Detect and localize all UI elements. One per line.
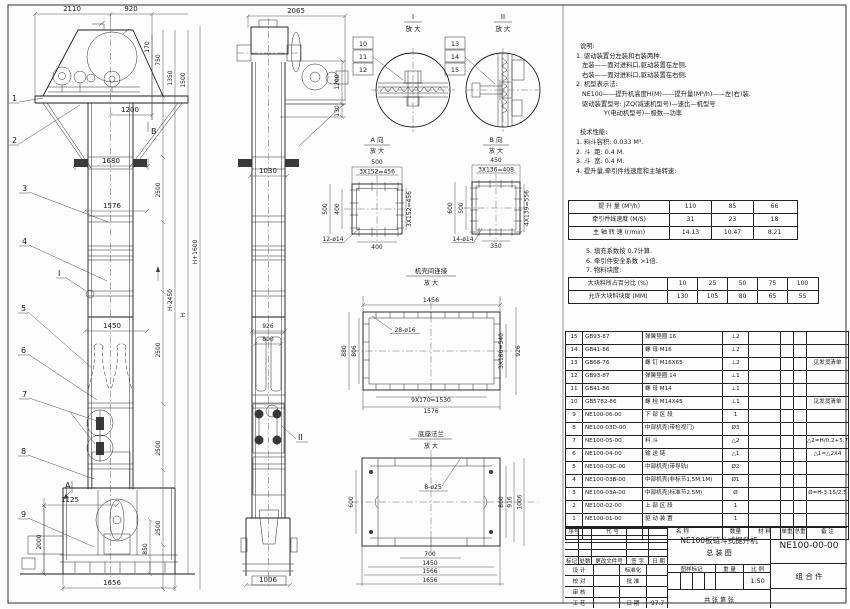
bom-cell-remark: [806, 384, 848, 396]
engineering-drawing-sheet: { "drawing": { "product_title": "NE100板链…: [0, 0, 850, 609]
bom-cell-material: [748, 462, 780, 474]
revision-row: [565, 535, 668, 542]
revision-cell: [626, 549, 648, 556]
roles-grid: 设 计 标准化 校 对 批 准 审 核 工 艺 日 期 97.7: [565, 564, 668, 608]
weight-value: [715, 572, 743, 589]
bom-cell-code: GB68-76: [582, 358, 642, 370]
stamp-box-4: [704, 572, 715, 589]
bom-cell-remark: [806, 462, 848, 474]
revision-row: [565, 528, 668, 535]
bom-row: 15GB93-87弹簧垫圈 16⊥2: [566, 332, 848, 344]
dim-1500: 1500: [180, 72, 187, 87]
lump-row-value: 10: [667, 278, 697, 290]
stamp-scale-h: 比 例: [743, 564, 771, 572]
bom-cell-remark: [806, 371, 848, 383]
dim-2110: 2110: [63, 5, 81, 13]
bom-row: 11GB41-86螺 母 M14⊥1: [566, 383, 848, 396]
dim-base-800: 800: [498, 496, 505, 508]
bom-cell-unit_w: [780, 449, 793, 461]
detail-b-sub: 放 大: [489, 147, 503, 155]
bom-cell-remark: 见发货清单: [806, 358, 848, 370]
bom-cell-no: 15: [566, 332, 582, 344]
bom-cell-material: [748, 371, 780, 383]
revision-cell: [648, 528, 668, 535]
perf-row-value: 18: [753, 214, 795, 226]
role-check: 校 对: [565, 575, 593, 586]
dim-h: H: [180, 313, 187, 318]
revision-cell: [626, 542, 648, 549]
bom-cell-qty: Ø3: [722, 423, 748, 435]
stamp-values: 1:50: [668, 572, 771, 589]
bom-cell-code: GB93-87: [582, 371, 642, 383]
detail-b-view: B 向 放 大 450 3X136=408 600 500 4X139=556 …: [447, 135, 531, 250]
lump-row-value: 80: [727, 291, 757, 303]
perf-row-value: 31: [669, 214, 711, 226]
mid-approve-sign: [646, 575, 668, 586]
drawing-title: 总 装 图: [706, 548, 731, 558]
bom-cell-name: 中部机壳(标准节2.5M): [642, 488, 722, 500]
revision-header: 标记 处数 更改文件号 签 字 日 期: [565, 556, 668, 564]
bom-cell-no: 7: [566, 436, 582, 448]
section-ii-mark: II: [298, 433, 303, 442]
bom-cell-qty: 1: [722, 410, 748, 422]
bom-cell-no: 6: [566, 449, 582, 461]
bom-cell-name: 螺 钉 M16X65: [642, 358, 722, 370]
detail-base-flange: 底座法兰 放 大 8-ø25 600 800 916 1006 700 1450…: [348, 429, 540, 586]
bom-cell-qty: ⊥2: [722, 345, 748, 357]
bom-cell-name: 螺 母 M14: [642, 384, 722, 396]
lump-row-value: 55: [787, 291, 817, 303]
dim-a-456r: 3X152=456: [406, 191, 413, 227]
balloon-2: 2: [12, 136, 17, 145]
bom-cell-no: 9: [566, 410, 582, 422]
assembly-label: 组 合 件: [771, 564, 847, 589]
bom-cell-total_w: [793, 514, 806, 526]
sheet-count: 共 张 第 张: [668, 589, 771, 608]
bom-cell-name: 驱 动 装 置: [642, 514, 722, 526]
bom-table: 15GB93-87弹簧垫圈 16⊥214GB41-86螺 母 M16⊥213GB…: [565, 331, 849, 540]
bom-cell-unit_w: [780, 423, 793, 435]
view-a-mark: A: [65, 481, 71, 490]
rev-h-doc: 更改文件号: [591, 556, 626, 564]
note-line: 3. 斗 宽: 0.4 M.: [576, 157, 844, 167]
revision-cell: [591, 542, 626, 549]
dim-b-556: 4X139=556: [524, 190, 531, 226]
role-check-sign: [593, 575, 619, 586]
revision-cell: [565, 535, 578, 542]
dim-base-916: 916: [507, 496, 514, 508]
scale-value: 1:50: [743, 572, 771, 589]
bom-cell-remark: △2=H/0.2+5.75: [806, 436, 848, 448]
dim-1656: 1656: [103, 579, 121, 587]
perf-row-value: 14.13: [669, 227, 711, 239]
balloon-4: 4: [22, 237, 27, 246]
balloon-8: 8: [21, 447, 26, 456]
note-line: 1. 驱动装置分左装和右装两种.: [576, 52, 844, 62]
bom-cell-remark: [806, 475, 848, 487]
balloon-5: 5: [21, 304, 26, 313]
bom-cell-material: [748, 488, 780, 500]
bom-row: 1NE100-01-00驱 动 装 置1: [566, 513, 848, 526]
bom-cell-total_w: [793, 488, 806, 500]
lump-row: 允许大块料块度 (MM)130105806555: [569, 290, 818, 303]
dim-1006: 1006: [259, 576, 277, 584]
role-review: 审 核: [565, 586, 593, 597]
dim-base-1450: 1450: [422, 560, 437, 567]
base-title: 底座法兰: [418, 429, 445, 438]
performance-table: 提 升 量 (M³/h)1108566牵引件线速度 (M/S)312318主 轴…: [568, 200, 798, 240]
bom-cell-qty: ⊥2: [722, 332, 748, 344]
note-line: 6. 牵引件安全系数 >1倍.: [586, 257, 844, 267]
bom-cell-code: NE100-03B-00: [582, 475, 642, 487]
bom-cell-no: 1: [566, 514, 582, 526]
bom-row: 14GB41-86螺 母 M16⊥2: [566, 344, 848, 357]
dim-800: 800: [262, 336, 274, 343]
note-line: 技术性能:: [576, 128, 844, 138]
dim-926: 926: [262, 323, 274, 330]
dim-2500-1: 2500: [155, 182, 162, 197]
bom-cell-remark: [806, 423, 848, 435]
bom-row: 12GB93-87弹簧垫圈 14⊥1: [566, 370, 848, 383]
bom-cell-unit_w: [780, 462, 793, 474]
dim-2500-3: 2500: [155, 440, 162, 455]
note-line: NE100——提升机高度H(M)——提升量(M³/h)——左(右)装.: [576, 90, 844, 100]
stamp-box-1: [668, 572, 680, 589]
lump-row-label: 大块料所占百分比 (%): [569, 278, 667, 290]
perf-row-value: 110: [669, 201, 711, 213]
bom-cell-code: NE100-03C-00: [582, 462, 642, 474]
dim-b-500: 500: [458, 202, 465, 214]
bom-cell-unit_w: [780, 410, 793, 422]
role-design-sign: [593, 564, 619, 575]
dim-h-plus: H+1600: [192, 239, 199, 264]
perf-row-label: 主 轴 转 速 (r/min): [569, 227, 669, 239]
dim-2065: 2065: [287, 7, 305, 15]
bom-cell-total_w: [793, 371, 806, 383]
bom-cell-unit_w: [780, 514, 793, 526]
bom-cell-qty: △1: [722, 449, 748, 461]
detail-i-num: I: [412, 13, 414, 21]
balloon-7: 7: [22, 390, 27, 399]
bom-cell-material: [748, 501, 780, 513]
date-value: 97.7: [646, 597, 668, 608]
dim-a-400l: 400: [334, 203, 341, 215]
dim-b-holes: 14-ø14: [452, 236, 473, 243]
dim-j-880: 880: [341, 345, 348, 357]
bom-row: 13GB68-76螺 钉 M16X65⊥2见发货清单: [566, 357, 848, 370]
revision-cell: [578, 542, 591, 549]
note-line: 4. 提升量,牵引件线速度和主轴转速:: [576, 167, 844, 177]
lump-row-value: 25: [697, 278, 727, 290]
bom-cell-total_w: [793, 332, 806, 344]
note-line: 1. 料斗容积: 0.033 M³.: [576, 138, 844, 148]
bom-cell-unit_w: [780, 475, 793, 487]
bom-cell-unit_w: [780, 358, 793, 370]
bom-cell-remark: [806, 501, 848, 513]
dim-1576: 1576: [103, 202, 121, 210]
balloon-13: 13: [451, 40, 459, 48]
bom-cell-name: 上 部 区 段: [642, 501, 722, 513]
bom-cell-remark: [806, 332, 848, 344]
note-line: 说明:: [576, 42, 844, 52]
balloon-15: 15: [451, 66, 459, 74]
bom-row: 3NE100-03A-00中部机壳(标准节2.5M)ØØ=H-3.15/2.5: [566, 487, 848, 500]
bom-cell-total_w: [793, 475, 806, 487]
dim-j-1456: 1456: [423, 296, 440, 304]
bom-cell-qty: ⊥1: [722, 384, 748, 396]
bom-cell-total_w: [793, 436, 806, 448]
detail-ii-sub: 放 大: [495, 24, 511, 33]
detail-i-sub: 放 大: [405, 24, 421, 33]
bom-row: 2NE100-02-00上 部 区 段1: [566, 500, 848, 513]
bom-cell-name: 螺 母 M16: [642, 345, 722, 357]
drawing-number: NE100-00-00: [771, 528, 847, 564]
bom-cell-total_w: [793, 384, 806, 396]
bom-cell-total_w: [793, 410, 806, 422]
balloon-6: 6: [21, 346, 26, 355]
bom-cell-no: 12: [566, 371, 582, 383]
bom-cell-no: 3: [566, 488, 582, 500]
revision-row: [565, 542, 668, 549]
perf-row-value: 10.47: [711, 227, 753, 239]
bom-cell-name: 中部机壳(带检视门): [642, 423, 722, 435]
bom-cell-total_w: [793, 462, 806, 474]
bom-row: 7NE100-05-00料 斗△2△2=H/0.2+5.75: [566, 435, 848, 448]
bom-cell-material: [748, 358, 780, 370]
dim-a-holes: 12-ø14: [322, 236, 343, 243]
revision-cell: [591, 549, 626, 556]
bom-cell-remark: 见发货清单: [806, 397, 848, 409]
base-sub: 放 大: [424, 442, 438, 450]
bom-cell-qty: Ø2: [722, 462, 748, 474]
stamp-header: 图样标记 重 量 比 例: [668, 564, 771, 572]
bom-cell-unit_w: [780, 384, 793, 396]
revision-cell: [591, 528, 626, 535]
note-line: Y(电动机型号)—极数—功率: [576, 109, 844, 119]
bom-cell-unit_w: [780, 332, 793, 344]
note-line: 7. 物料块度:: [586, 266, 844, 276]
detail-a-view: A 向 放 大 500 3X152=456 500 400 3X152=456 …: [322, 135, 413, 251]
perf-row: 主 轴 转 速 (r/min)14.1310.478.21: [569, 226, 797, 239]
balloon-14: 14: [451, 53, 459, 61]
revision-cell: [578, 535, 591, 542]
dim-1680: 1680: [102, 157, 120, 165]
rev-h-mark: 标记: [565, 556, 578, 564]
bom-cell-code: NE100-03A-00: [582, 488, 642, 500]
revision-cell: [565, 549, 578, 556]
bom-cell-qty: ⊥1: [722, 371, 748, 383]
bom-cell-material: [748, 514, 780, 526]
balloon-9: 9: [21, 510, 26, 519]
bom-row: 8NE100-03D-00中部机壳(带检视门)Ø3: [566, 422, 848, 435]
dim-920: 920: [124, 5, 137, 13]
bom-cell-total_w: [793, 358, 806, 370]
mid-approve: 批 准: [619, 575, 646, 586]
bom-cell-no: 2: [566, 501, 582, 513]
perf-row-value: 85: [711, 201, 753, 213]
bom-cell-code: GB5782-86: [582, 397, 642, 409]
lump-row: 大块料所占百分比 (%)10255075100: [569, 278, 818, 290]
role-process: 工 艺: [565, 597, 593, 608]
perf-row: 牵引件线速度 (M/S)312318: [569, 213, 797, 226]
mid-standardize-sign: [646, 564, 668, 575]
dim-170: 170: [144, 41, 151, 53]
bom-cell-code: NE100-01-00: [582, 514, 642, 526]
dim-base-700: 700: [424, 551, 436, 558]
bom-cell-total_w: [793, 501, 806, 513]
bom-cell-material: [748, 410, 780, 422]
bom-cell-qty: ⊥1: [722, 397, 748, 409]
bom-cell-remark: [806, 345, 848, 357]
lump-row-label: 允许大块料块度 (MM): [569, 291, 667, 303]
mid-blank: [619, 586, 646, 597]
detail-b-title: B 向: [489, 135, 502, 144]
revision-rows: [565, 528, 668, 556]
balloon-12: 12: [359, 66, 367, 74]
dim-1200-side: 1200: [334, 74, 341, 89]
revision-cell: [565, 528, 578, 535]
role-design: 设 计: [565, 564, 593, 575]
perf-row-label: 牵引件线速度 (M/S): [569, 214, 669, 226]
rev-h-date: 日 期: [648, 556, 668, 564]
mid-blank-sign: [646, 586, 668, 597]
bom-row: 5NE100-03C-00中部机壳(带导轨)Ø2: [566, 461, 848, 474]
dim-b-408: 3X136=408: [478, 167, 514, 174]
revision-row: [565, 549, 668, 556]
bom-cell-material: [748, 345, 780, 357]
bom-cell-material: [748, 332, 780, 344]
dim-base-1566: 1566: [422, 568, 437, 575]
dim-750: 750: [155, 54, 162, 66]
bom-cell-total_w: [793, 345, 806, 357]
revision-cell: [565, 542, 578, 549]
mid-date: 日 期: [619, 597, 646, 608]
dim-1450: 1450: [103, 322, 121, 330]
rev-h-count: 处数: [578, 556, 591, 564]
stamp-mark-h: 图样标记: [668, 564, 715, 572]
dim-b-450: 450: [490, 157, 502, 164]
bom-cell-name: 料 斗: [642, 436, 722, 448]
balloon-3: 3: [22, 184, 27, 193]
notes-block: 说明:1. 驱动装置分左装和右装两种. 左装——面对进料口,驱动装置在左侧. 右…: [576, 42, 844, 176]
revision-cell: [648, 549, 668, 556]
dim-b-350: 350: [490, 243, 502, 250]
rev-h-sign: 签 字: [626, 556, 648, 564]
dim-2500-2: 2500: [155, 342, 162, 357]
lump-row-value: 100: [787, 278, 817, 290]
bom-cell-material: [748, 423, 780, 435]
lump-row-value: 105: [697, 291, 727, 303]
bom-cell-qty: ⊥2: [722, 358, 748, 370]
balloon-11: 11: [359, 53, 367, 61]
bom-cell-no: 10: [566, 397, 582, 409]
dim-a-456t: 3X152=456: [359, 169, 395, 176]
note-line: 5. 填充系数按 0.7计算.: [586, 247, 844, 257]
bom-cell-total_w: [793, 423, 806, 435]
bom-cell-no: 5: [566, 462, 582, 474]
bom-cell-material: [748, 384, 780, 396]
note-line: 2. 斗 距: 0.4 M.: [576, 148, 844, 158]
revision-cell: [626, 528, 648, 535]
bom-row: 9NE100-06-00下 部 区 段1: [566, 409, 848, 422]
title-block: 标记 处数 更改文件号 签 字 日 期 设 计 标准化 校 对 批 准 审 核 …: [565, 527, 847, 608]
dim-850: 850: [142, 543, 149, 555]
note-line: [576, 119, 844, 129]
bom-cell-code: GB41-86: [582, 345, 642, 357]
dim-a-500t: 500: [371, 159, 383, 166]
revision-cell: [626, 535, 648, 542]
lump-size-table: 大块料所占百分比 (%)10255075100允许大块料块度 (MM)13010…: [568, 277, 819, 304]
bom-cell-qty: △2: [722, 436, 748, 448]
bom-cell-unit_w: [780, 436, 793, 448]
stamp-box-2: [680, 572, 692, 589]
perf-row: 提 升 量 (M³/h)1108566: [569, 201, 797, 213]
bom-cell-no: 4: [566, 475, 582, 487]
bom-cell-qty: 1: [722, 514, 748, 526]
detail-ii-num: II: [501, 13, 505, 21]
bom-cell-code: NE100-05-00: [582, 436, 642, 448]
revision-cell: [591, 535, 626, 542]
notes-block-2: 5. 填充系数按 0.7计算.6. 牵引件安全系数 >1倍.7. 物料块度:: [586, 247, 844, 276]
view-b-mark: B: [151, 127, 157, 136]
dim-1350: 1350: [167, 70, 174, 85]
balloon-10: 10: [359, 40, 367, 48]
bom-cell-no: 14: [566, 345, 582, 357]
dim-a-500l: 500: [322, 203, 329, 215]
bom-cell-remark: [806, 410, 848, 422]
joint-title: 机壳间连接: [415, 266, 448, 275]
dim-base-holes: 8-ø25: [424, 484, 441, 491]
perf-row-label: 提 升 量 (M³/h): [569, 201, 669, 213]
note-line: 右装——面对进料口,驱动装置在右侧.: [576, 71, 844, 81]
perf-row-value: 8.21: [753, 227, 795, 239]
bom-row: 4NE100-03B-00中部机壳(非标节1.5M,1M)Ø1: [566, 474, 848, 487]
role-review-sign: [593, 586, 619, 597]
note-line: 左装——面对进料口,驱动装置在左侧.: [576, 61, 844, 71]
bom-cell-no: 11: [566, 384, 582, 396]
bom-cell-remark: [806, 514, 848, 526]
bom-cell-material: [748, 449, 780, 461]
bom-cell-qty: Ø1: [722, 475, 748, 487]
bom-cell-code: NE100-04-00: [582, 449, 642, 461]
bom-cell-remark: △1=△2X4: [806, 449, 848, 461]
bom-cell-name: 中部机壳(非标节1.5M,1M): [642, 475, 722, 487]
bom-cell-qty: 1: [722, 501, 748, 513]
side-view: 2065 1030 926 800 II: [237, 7, 348, 587]
role-process-sign: [593, 597, 619, 608]
revision-cell: [648, 542, 668, 549]
bom-cell-material: [748, 397, 780, 409]
dim-base-1006: 1006: [517, 494, 524, 509]
dim-b-600: 600: [447, 202, 454, 214]
revision-cell: [648, 535, 668, 542]
drawing-title-box: NE100板链斗式提升机 总 装 图: [668, 528, 771, 564]
dim-a-400b: 400: [371, 244, 383, 251]
bom-cell-total_w: [793, 449, 806, 461]
bom-cell-qty: Ø: [722, 488, 748, 500]
bom-cell-name: 中部机壳(带导轨): [642, 462, 722, 474]
dim-j-540: 3X180=540: [498, 333, 505, 369]
detail-i: I 放 大 10 11 12: [353, 13, 455, 132]
dim-base-1656: 1656: [422, 577, 437, 584]
bom-cell-unit_w: [780, 397, 793, 409]
bom-cell-name: 弹簧垫圈 14: [642, 371, 722, 383]
dim-h-minus: H-2450: [167, 289, 174, 311]
stamp-weight-h: 重 量: [715, 564, 743, 572]
dim-130: 130: [334, 105, 341, 117]
note-line: 2. 机型表示法:: [576, 80, 844, 90]
bom-cell-unit_w: [780, 488, 793, 500]
